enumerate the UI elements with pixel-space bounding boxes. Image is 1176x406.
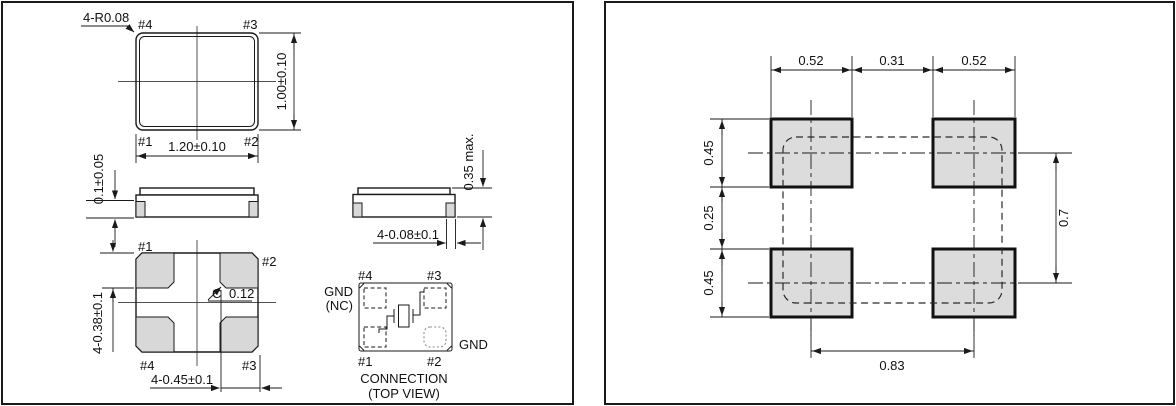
end-view-terminal-width-dim: 4-0.08±0.1: [377, 227, 439, 242]
dim-top-center: 0.31: [879, 53, 904, 68]
dim-left-middle: 0.25: [701, 205, 716, 230]
bottom-view-pin-1: #1: [138, 239, 152, 254]
connection-caption-line1: CONNECTION: [360, 371, 447, 386]
chamfer-value: 0.12: [229, 286, 254, 301]
connection-pin-4: #4: [358, 268, 372, 283]
connection-pin-3: #3: [427, 268, 441, 283]
gnd-label: GND: [459, 337, 488, 352]
top-view-pin-3: #3: [243, 17, 257, 32]
bottom-view-pin-4: #4: [140, 358, 154, 373]
connection-pin-2: #2: [427, 354, 441, 369]
bottom-view-pad-length-dim: 4-0.38±0.1: [90, 292, 105, 354]
connection-caption-line2: (TOP VIEW): [368, 386, 440, 401]
dim-top-left: 0.52: [798, 53, 823, 68]
package-dimensions-drawing: 4-R0.08 #4 #3 #1 #2 1.20±0.10 1.00±0.10: [0, 0, 580, 406]
corner-radius-label: 4-R0.08: [83, 10, 129, 25]
gnd-nc-label-line2: (NC): [326, 298, 353, 313]
top-view-pin-2: #2: [244, 134, 258, 149]
dim-bottom: 0.83: [879, 358, 904, 373]
side-view-terminal-thickness-dim: 0.1±0.05: [91, 154, 106, 205]
dim-right: 0.7: [1056, 209, 1071, 227]
gnd-nc-label-line1: GND: [324, 284, 353, 299]
top-view-height-dim: 1.00±0.10: [274, 53, 289, 111]
land-pattern-drawing: 0.52 0.31 0.52 0.45 0.25 0.45 0.7: [580, 0, 1176, 406]
dim-top-right: 0.52: [961, 53, 986, 68]
top-view-width-dim: 1.20±0.10: [168, 139, 226, 154]
bottom-view-pin-3: #3: [242, 358, 256, 373]
dim-left-bottom: 0.45: [701, 270, 716, 295]
top-view-pin-1: #1: [138, 134, 152, 149]
bottom-view-pad-width-dim: 4-0.45±0.1: [151, 372, 213, 387]
end-view-max-height-dim: 0.35 max.: [461, 133, 476, 190]
bottom-view-pin-2: #2: [262, 254, 276, 269]
connection-pin-1: #1: [358, 354, 372, 369]
top-view-pin-4: #4: [138, 17, 152, 32]
dim-left-top: 0.45: [701, 140, 716, 165]
datasheet-drawing: 4-R0.08 #4 #3 #1 #2 1.20±0.10 1.00±0.10: [0, 0, 1176, 406]
chamfer-letter: C: [212, 286, 221, 301]
